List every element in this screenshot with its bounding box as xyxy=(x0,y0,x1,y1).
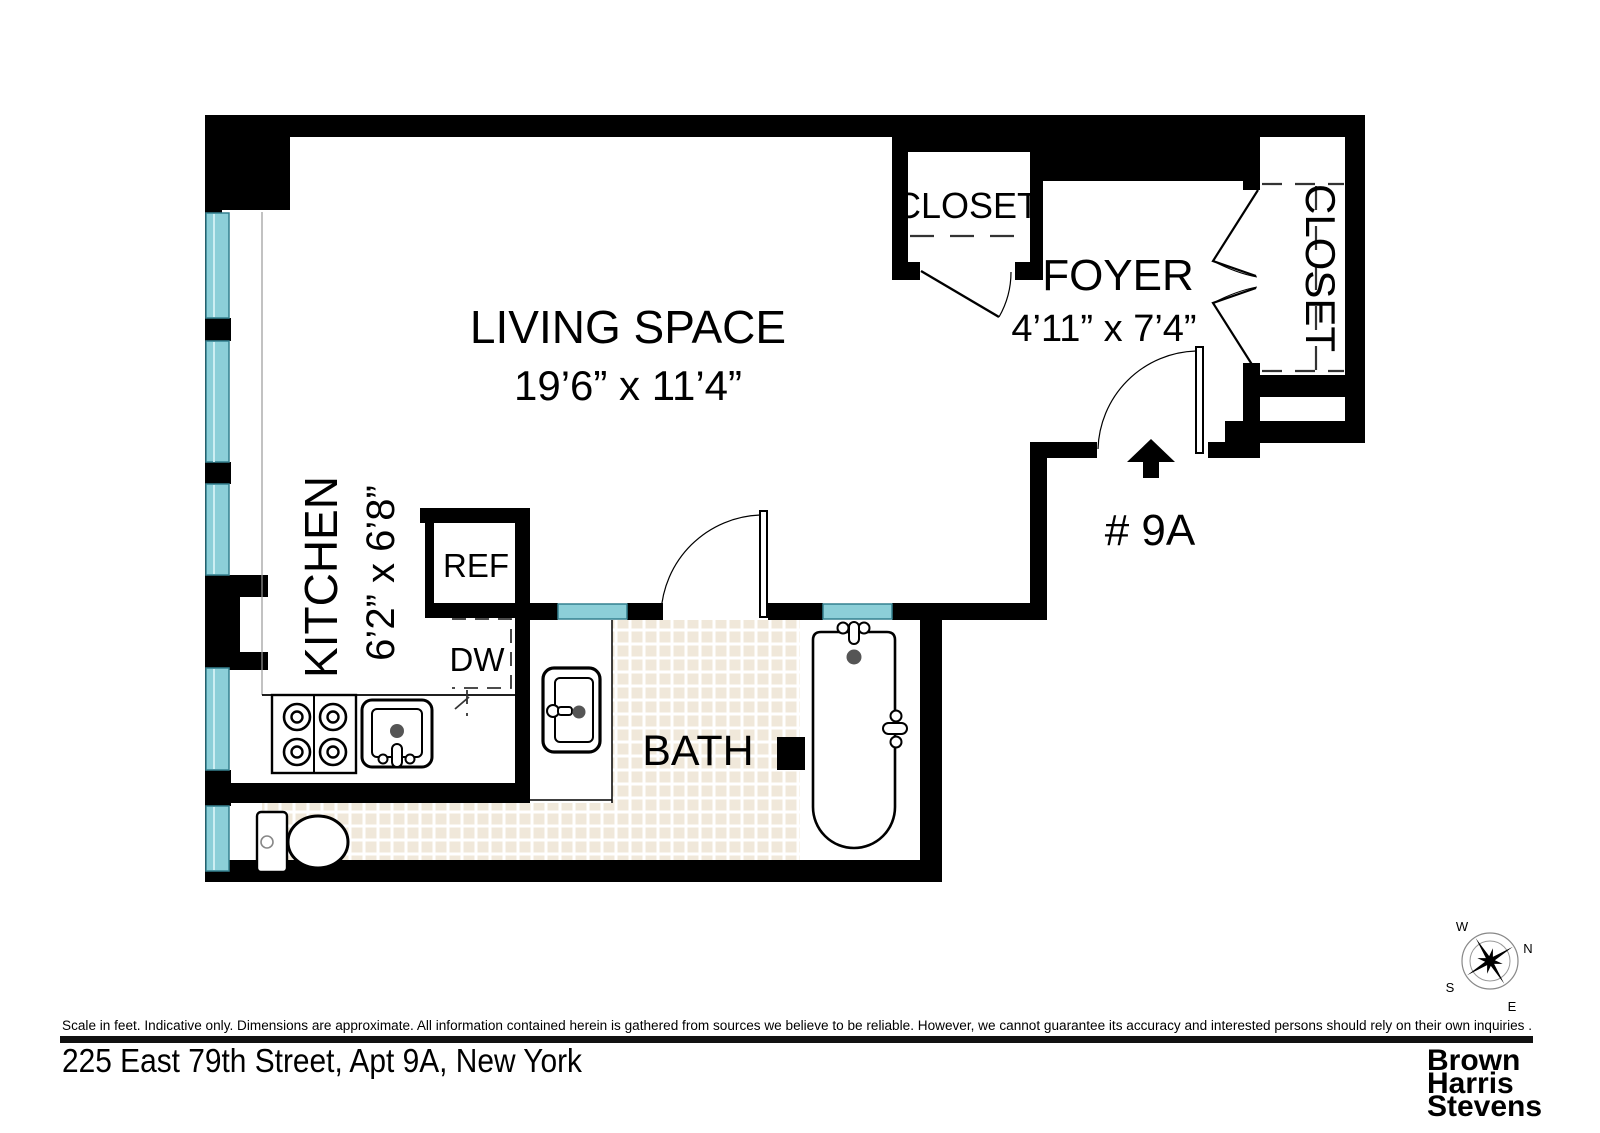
living-space-dims: 19’6” x 11’4” xyxy=(514,362,742,409)
dw-label: DW xyxy=(450,641,506,678)
wall-notch xyxy=(240,597,268,652)
kitchen-sink xyxy=(362,700,432,767)
ref-label: REF xyxy=(443,547,509,584)
floorplan-page: LIVING SPACE 19’6” x 11’4” FOYER 4’11” x… xyxy=(0,0,1600,1133)
right-closet-bifold-doors xyxy=(1213,190,1258,374)
foyer-dims: 4’11” x 7’4” xyxy=(1011,308,1196,350)
kitchen-label: KITCHEN xyxy=(295,476,347,678)
address-text: 225 East 79th Street, Apt 9A, New York xyxy=(62,1042,582,1079)
brand-line-3: Stevens xyxy=(1427,1090,1542,1123)
bath-door xyxy=(661,511,767,617)
compass-w: W xyxy=(1456,919,1469,934)
entry-door xyxy=(1098,347,1203,453)
foyer-label: FOYER xyxy=(1042,251,1194,300)
entrance-arrow-icon xyxy=(1127,439,1175,478)
unit-label: # 9A xyxy=(1105,506,1196,555)
bath-label: BATH xyxy=(642,727,754,775)
living-space-label: LIVING SPACE xyxy=(470,301,786,353)
disclaimer-text: Scale in feet. Indicative only. Dimensio… xyxy=(62,1018,1532,1033)
bathtub xyxy=(813,622,907,848)
brand-logo: Brown Harris Stevens xyxy=(1427,1044,1542,1123)
floorplan-drawing: LIVING SPACE 19’6” x 11’4” FOYER 4’11” x… xyxy=(0,0,1600,1133)
compass-n: N xyxy=(1523,941,1532,956)
top-closet-door xyxy=(921,271,1011,317)
kitchen-dims: 6’2” x 6’8” xyxy=(359,485,403,661)
compass-e: E xyxy=(1508,999,1517,1014)
top-closet-label: CLOSET xyxy=(895,185,1039,226)
compass-s: S xyxy=(1446,980,1455,995)
compass-rose-icon: N W S E xyxy=(1446,919,1533,1014)
right-closet-label: CLOSET xyxy=(1297,184,1344,352)
vanity-sink xyxy=(543,668,600,752)
toilet xyxy=(257,812,348,872)
stove xyxy=(272,695,356,773)
